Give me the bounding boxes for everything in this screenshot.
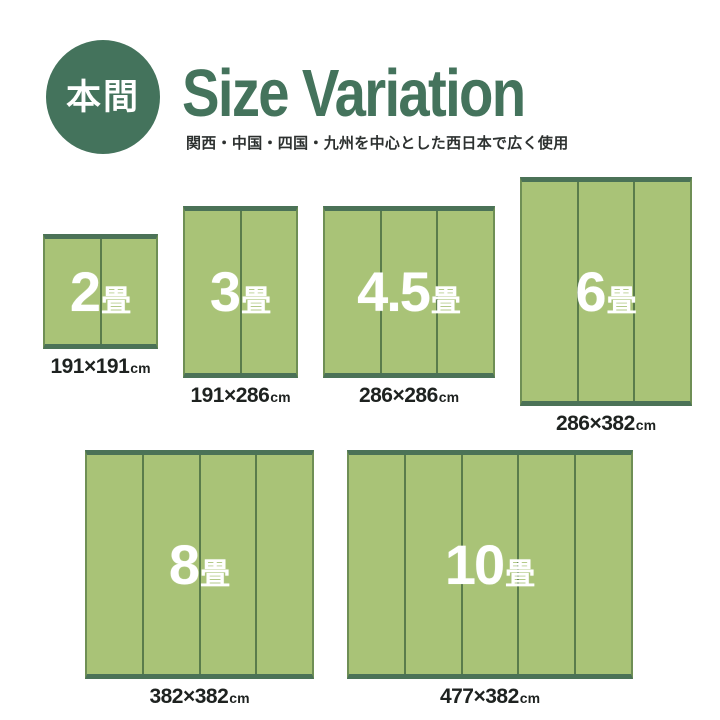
mat-dimensions-label: 477×382 cm	[440, 684, 540, 709]
tatami-panel	[255, 455, 312, 674]
mat-dimensions-unit: cm	[520, 690, 540, 707]
tatami-panel	[185, 211, 240, 373]
mat-dimensions-value: 286×382	[556, 411, 635, 436]
mat-card-10jo: 10 畳 477×382 cm	[347, 450, 633, 709]
page-title: Size Variation	[182, 60, 524, 127]
mat-dimensions-unit: cm	[636, 417, 656, 434]
tatami-panel	[240, 211, 297, 373]
tatami-panel	[87, 455, 142, 674]
tatami-panel	[633, 182, 690, 401]
mat-dimensions-value: 191×286	[190, 383, 269, 408]
tatami-panel	[577, 182, 634, 401]
tatami-panel	[574, 455, 631, 674]
honma-badge: 本間	[46, 40, 160, 154]
mat-dimensions-label: 191×286 cm	[190, 383, 290, 408]
page-subtitle: 関西・中国・四国・九州を中心とした西日本で広く使用	[186, 132, 569, 153]
mat-dimensions-value: 191×191	[50, 354, 129, 379]
mat-dimensions-value: 477×382	[440, 684, 519, 709]
tatami-panel	[45, 239, 100, 344]
tatami-panel	[349, 455, 404, 674]
mat-dimensions-label: 286×286 cm	[359, 383, 459, 408]
tatami-panel	[517, 455, 574, 674]
mat-dimensions-label: 382×382 cm	[149, 684, 249, 709]
tatami-panel	[436, 211, 493, 373]
mat-card-8jo: 8 畳 382×382 cm	[85, 450, 314, 709]
tatami-panel	[325, 211, 380, 373]
mat-dimensions-unit: cm	[439, 389, 459, 406]
mat-dimensions-value: 286×286	[359, 383, 438, 408]
tatami-panel	[199, 455, 256, 674]
tatami-panel	[142, 455, 199, 674]
mat-dimensions-label: 286×382 cm	[556, 411, 656, 436]
tatami-panel	[100, 239, 157, 344]
tatami-mat: 2 畳	[43, 234, 158, 349]
mat-dimensions-unit: cm	[229, 690, 249, 707]
mat-card-3jo: 3 畳 191×286 cm	[183, 206, 298, 408]
tatami-panel	[461, 455, 518, 674]
mat-card-4-5jo: 4.5 畳 286×286 cm	[323, 206, 495, 408]
mat-dimensions-unit: cm	[270, 389, 290, 406]
tatami-mat: 10 畳	[347, 450, 633, 679]
tatami-panel	[522, 182, 577, 401]
honma-badge-label: 本間	[66, 80, 140, 115]
size-row-bottom: 8 畳 382×382 cm 10 畳 477×382 cm	[85, 450, 633, 709]
mat-dimensions-unit: cm	[130, 360, 150, 377]
mat-dimensions-value: 382×382	[149, 684, 228, 709]
size-row-top: 2 畳 191×191 cm 3 畳 191×286 cm	[43, 176, 692, 438]
mat-card-2jo: 2 畳 191×191 cm	[43, 234, 158, 379]
mat-card-6jo: 6 畳 286×382 cm	[520, 177, 692, 436]
tatami-mat: 4.5 畳	[323, 206, 495, 378]
tatami-mat: 3 畳	[183, 206, 298, 378]
tatami-panel	[404, 455, 461, 674]
tatami-mat: 8 畳	[85, 450, 314, 679]
mat-dimensions-label: 191×191 cm	[50, 354, 150, 379]
tatami-panel	[380, 211, 437, 373]
size-variation-infographic: 本間 Size Variation 関西・中国・四国・九州を中心とした西日本で広…	[0, 0, 720, 720]
tatami-mat: 6 畳	[520, 177, 692, 406]
